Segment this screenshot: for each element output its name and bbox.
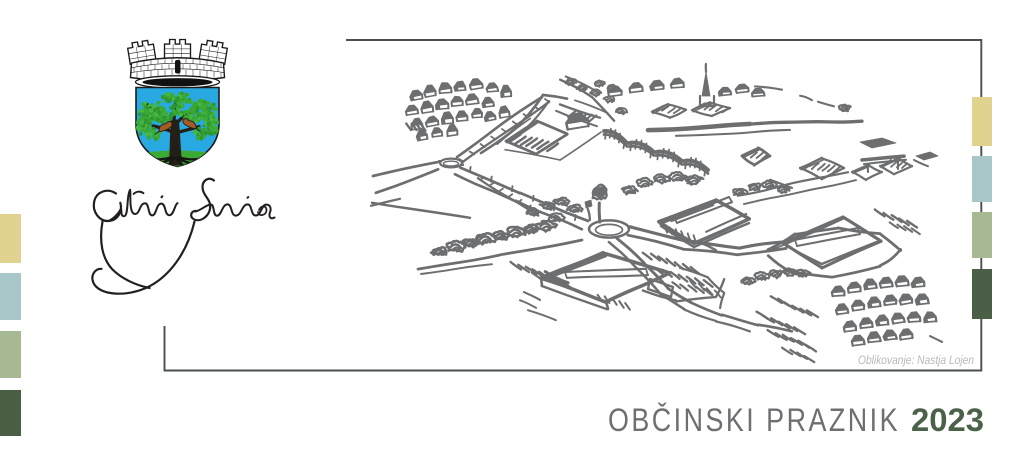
- svg-text:2023: 2023: [911, 402, 984, 438]
- svg-text:Oblikovanje: Nastja Lojen: Oblikovanje: Nastja Lojen: [858, 355, 974, 367]
- svg-text:OBČINSKI PRAZNIK: OBČINSKI PRAZNIK: [608, 401, 900, 438]
